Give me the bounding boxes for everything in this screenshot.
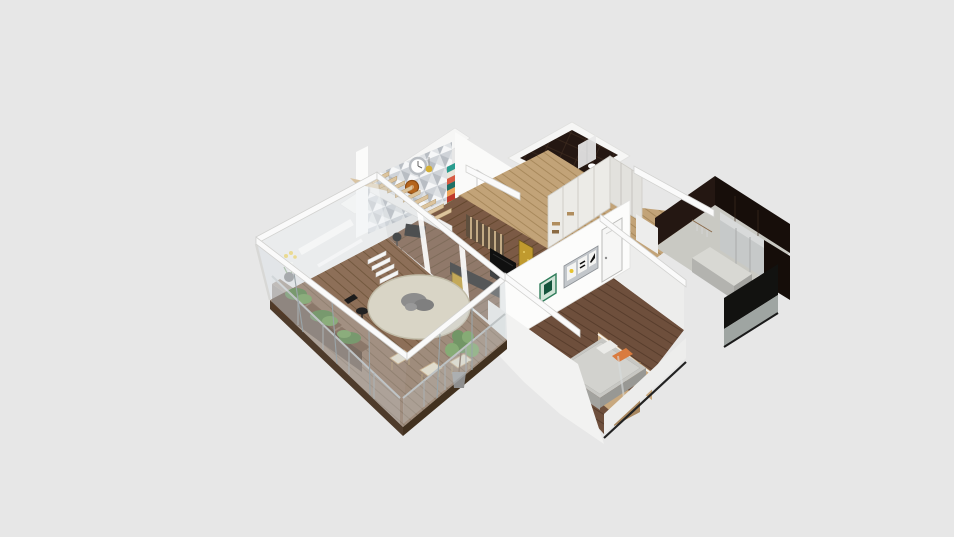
gold-pendant <box>426 166 433 173</box>
door-handle <box>605 257 607 259</box>
floorplan-3d-view[interactable] <box>0 0 954 537</box>
